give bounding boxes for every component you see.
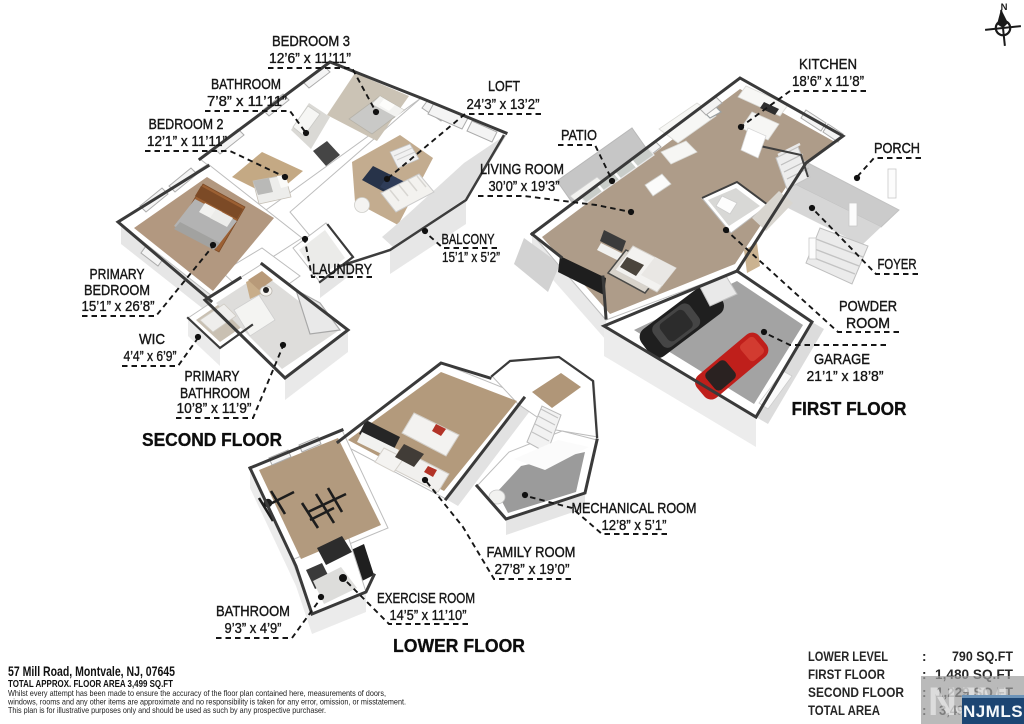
- svg-text:7’8” x 11’11”: 7’8” x 11’11”: [207, 93, 287, 110]
- svg-text:LAUNDRY: LAUNDRY: [312, 261, 372, 278]
- svg-text:LOFT: LOFT: [488, 78, 520, 95]
- svg-text:WIC: WIC: [139, 331, 165, 348]
- svg-text:21’1” x 18’8”: 21’1” x 18’8”: [807, 368, 884, 385]
- svg-text:FAMILY ROOM: FAMILY ROOM: [487, 544, 576, 561]
- svg-text:4’4” x 6’9”: 4’4” x 6’9”: [124, 348, 177, 365]
- svg-text:BALCONY: BALCONY: [442, 231, 495, 248]
- svg-text:12’8” x 5’1”: 12’8” x 5’1”: [602, 517, 667, 534]
- svg-text:BEDROOM 2: BEDROOM 2: [149, 116, 224, 133]
- svg-text:FOYER: FOYER: [878, 256, 917, 273]
- svg-text:9’3” x 4’9”: 9’3” x 4’9”: [225, 620, 282, 637]
- svg-text:790 SQ.FT: 790 SQ.FT: [952, 649, 1014, 664]
- svg-text:15’1” x 5’2”: 15’1” x 5’2”: [442, 249, 500, 266]
- svg-text:LOWER LEVEL: LOWER LEVEL: [808, 649, 888, 664]
- svg-text:LOWER FLOOR: LOWER FLOOR: [393, 635, 525, 656]
- svg-text:KITCHEN: KITCHEN: [799, 56, 857, 73]
- svg-text:FIRST FLOOR: FIRST FLOOR: [792, 398, 907, 419]
- svg-text:24’3” x 13’2”: 24’3” x 13’2”: [467, 96, 540, 113]
- svg-text:SECOND FLOOR: SECOND FLOOR: [808, 685, 904, 700]
- svg-text:30’0” x 19’3”: 30’0” x 19’3”: [489, 178, 560, 195]
- svg-text:57 Mill Road, Montvale, NJ, 07: 57 Mill Road, Montvale, NJ, 07645: [8, 663, 175, 679]
- svg-text::: :: [922, 649, 927, 664]
- svg-text:This plan is for illustrative: This plan is for illustrative purposes o…: [8, 705, 326, 715]
- svg-text:12’1” x 11’11”: 12’1” x 11’11”: [147, 133, 227, 150]
- svg-text:PRIMARY: PRIMARY: [185, 368, 240, 385]
- svg-text:GARAGE: GARAGE: [814, 351, 870, 368]
- svg-text:BEDROOM 3: BEDROOM 3: [272, 33, 350, 50]
- svg-text:MECHANICAL ROOM: MECHANICAL ROOM: [572, 500, 697, 517]
- svg-text:27’8” x 19’0”: 27’8” x 19’0”: [495, 561, 570, 578]
- svg-text:SECOND FLOOR: SECOND FLOOR: [142, 429, 282, 450]
- svg-text:10’8” x 11’9”: 10’8” x 11’9”: [177, 400, 252, 417]
- svg-text:PRIMARY: PRIMARY: [90, 266, 145, 283]
- svg-text:EXERCISE ROOM: EXERCISE ROOM: [377, 590, 475, 607]
- svg-text:LIVING ROOM: LIVING ROOM: [480, 161, 564, 178]
- svg-text:BEDROOM: BEDROOM: [84, 282, 150, 299]
- svg-text:POWDER: POWDER: [839, 298, 897, 315]
- svg-text:14’5” x 11’10”: 14’5” x 11’10”: [390, 607, 467, 624]
- svg-text:FIRST FLOOR: FIRST FLOOR: [808, 667, 885, 682]
- svg-text:ROOM: ROOM: [846, 315, 890, 332]
- svg-text:BATHROOM: BATHROOM: [211, 76, 281, 93]
- svg-text:PATIO: PATIO: [561, 127, 597, 144]
- svg-text:TOTAL AREA: TOTAL AREA: [808, 703, 880, 718]
- svg-text:PORCH: PORCH: [874, 140, 920, 157]
- svg-text:18’6” x 11’8”: 18’6” x 11’8”: [792, 73, 864, 90]
- svg-text:15’1” x 26’8”: 15’1” x 26’8”: [82, 298, 155, 315]
- svg-text:12’6” x 11’11”: 12’6” x 11’11”: [269, 50, 351, 67]
- svg-text:NJMLS: NJMLS: [963, 702, 1023, 721]
- svg-text:BATHROOM: BATHROOM: [216, 603, 290, 620]
